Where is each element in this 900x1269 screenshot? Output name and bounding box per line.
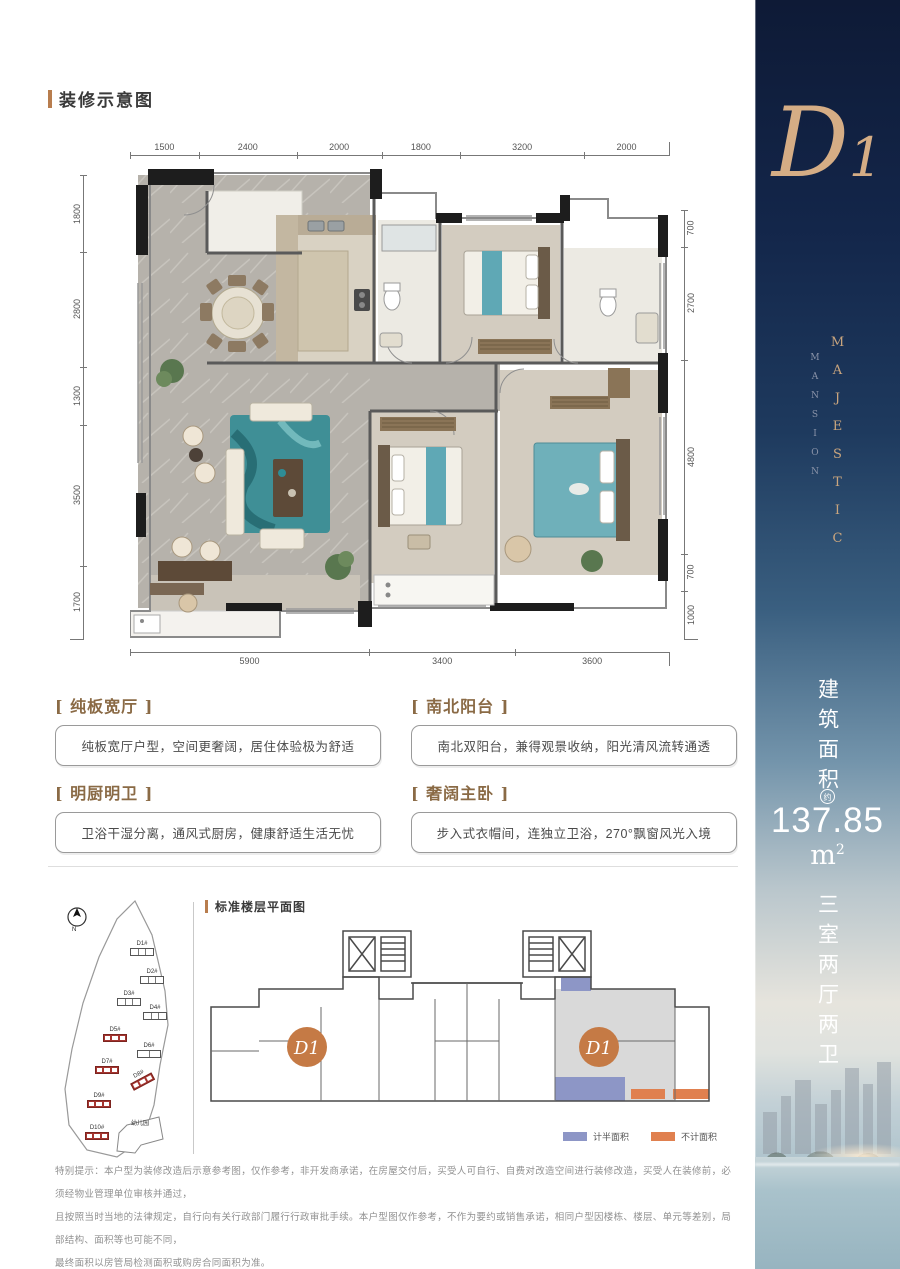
area-label: 建筑面积 (755, 678, 900, 798)
building-d4: D4# (143, 1005, 167, 1020)
half-area-bottom (555, 1077, 625, 1101)
building-d3: D3# (117, 991, 141, 1006)
unit-number: 1 (849, 126, 883, 189)
feature-title: [ 明厨明卫 ] (55, 780, 381, 804)
dim-label: 3200 (460, 142, 584, 156)
building-d5: D5# (103, 1027, 127, 1042)
north-label: N (72, 927, 76, 933)
feature-desc: 卫浴干湿分离，通风式厨房，健康舒适生活无忧 (55, 812, 381, 853)
dim-label: 3400 (369, 652, 515, 666)
kitchen-island (298, 251, 348, 351)
armchair (505, 536, 531, 562)
floor-plan (130, 163, 670, 645)
accent-bar (205, 900, 208, 913)
half-area-top (561, 977, 591, 991)
feature-desc: 纯板宽厅户型，空间更奢阔，居住体验极为舒适 (55, 725, 381, 766)
standard-floor-plan: D1 D1 (203, 921, 731, 1126)
dim-label: 1800 (382, 142, 460, 156)
north-arrow (73, 908, 81, 917)
floor-plan-drawing (130, 163, 670, 645)
hallway-floor (370, 363, 500, 411)
legend-swatch-blue (563, 1132, 587, 1141)
building-d10: D10# (85, 1125, 109, 1140)
excluded-area-2 (673, 1089, 709, 1099)
dim-label: 2400 (199, 142, 297, 156)
page-title: 装修示意图 (59, 86, 154, 111)
dim-label: 2700 (686, 293, 696, 313)
building-d9: D9# (87, 1093, 111, 1108)
dim-label: 1000 (686, 605, 696, 625)
layout-description: 三室两厅两卫 (755, 893, 900, 1073)
dim-label: 2000 (584, 142, 670, 156)
building-d2: D2# (140, 969, 164, 984)
feature-title: [ 奢阔主卧 ] (411, 780, 737, 804)
dim-label: 1500 (130, 142, 199, 156)
section-header-decoration: 装修示意图 (48, 86, 154, 111)
area-unit: m2 (755, 840, 900, 871)
vertical-divider (193, 902, 194, 1154)
feature-bright-kitchen-bath: [ 明厨明卫 ] 卫浴干湿分离，通风式厨房，健康舒适生活无忧 (55, 780, 381, 853)
feature-title: [ 南北阳台 ] (411, 693, 737, 717)
standard-floor-title: 标准楼层平面图 (215, 898, 306, 915)
excluded-area-1 (631, 1089, 665, 1099)
plant (581, 550, 603, 572)
dim-label: 700 (686, 221, 696, 236)
legend-excluded-area: 不计面积 (651, 1130, 717, 1143)
feature-wide-hall: [ 纯板宽厅 ] 纯板宽厅户型，空间更奢阔，居住体验极为舒适 (55, 693, 381, 766)
disclaimer-line: 特别提示：本户型为装修改造后示意参考图，仅作参考，非开发商承诺，在房屋交付后，买… (55, 1160, 737, 1206)
brand-line1: MAJESTIC (830, 335, 845, 559)
dim-label: 3500 (72, 485, 82, 505)
section-header-standard-floor: 标准楼层平面图 (205, 898, 306, 915)
horizontal-divider (48, 866, 738, 867)
feature-desc: 步入式衣帽间，连独立卫浴，270°飘窗风光入境 (411, 812, 737, 853)
brand-name: MANSION MAJESTIC (755, 335, 900, 559)
dim-label: 1800 (72, 204, 82, 224)
dim-label: 3600 (515, 652, 670, 666)
unit-label-right: D1 (585, 1038, 612, 1059)
dim-ruler-left: 1800 2800 1300 3500 1700 (70, 175, 84, 640)
sidebar: D1 MANSION MAJESTIC 建筑面积 约 137.85 m2 三室两… (755, 0, 900, 1269)
dim-label: 2000 (297, 142, 382, 156)
building-d6: D6# (137, 1043, 161, 1058)
feature-balconies: [ 南北阳台 ] 南北双阳台，兼得观景收纳，阳光清风流转通透 (411, 693, 737, 766)
legend: 计半面积 不计面积 (563, 1130, 717, 1143)
dim-ruler-top: 1500 2400 2000 1800 3200 2000 (130, 142, 670, 156)
disclaimer: 特别提示：本户型为装修改造后示意参考图，仅作参考，非开发商承诺，在房屋交付后，买… (55, 1160, 737, 1269)
accent-bar (48, 90, 52, 108)
unit-letter: D (772, 87, 849, 199)
feature-desc: 南北双阳台，兼得观景收纳，阳光清风流转通透 (411, 725, 737, 766)
disclaimer-line: 且按照当时当地的法律规定，自行向有关行政部门履行行政审批手续。本户型图仅作参考，… (55, 1206, 737, 1252)
disclaimer-line: 最终面积以房管局检测面积或购房合同面积为准。 (55, 1252, 737, 1269)
site-plan: N D1# D2# D3# D4# D5# D6# D7# (55, 893, 190, 1165)
dim-label: 2800 (72, 299, 82, 319)
feature-title: [ 纯板宽厅 ] (55, 693, 381, 717)
building-d7: D7# (95, 1059, 119, 1074)
water (755, 1157, 900, 1269)
brand-line2: MANSION (810, 353, 820, 559)
dim-ruler-bottom: 5900 3400 3600 (130, 652, 670, 666)
dim-label: 1700 (72, 592, 82, 612)
unit-badge: D1 (755, 88, 900, 198)
building-d1: D1# (130, 941, 154, 956)
dim-label: 1300 (72, 386, 82, 406)
legend-swatch-orange (651, 1132, 675, 1141)
feature-list: [ 纯板宽厅 ] 纯板宽厅户型，空间更奢阔，居住体验极为舒适 [ 南北阳台 ] … (55, 693, 737, 853)
coffee-table (273, 459, 303, 517)
dim-label: 5900 (130, 652, 369, 666)
area-value: 137.85 (755, 801, 900, 841)
legend-half-area: 计半面积 (563, 1130, 629, 1143)
dim-label: 4800 (686, 447, 696, 467)
brochure-page: 装修示意图 1500 2400 2000 1800 3200 2000 1800… (0, 0, 900, 1269)
dim-ruler-right: 700 2700 4800 700 1000 (684, 210, 698, 640)
unit-label-left: D1 (293, 1038, 320, 1059)
kindergarten-label: 幼儿园 (131, 1118, 149, 1127)
feature-master-suite: [ 奢阔主卧 ] 步入式衣帽间，连独立卫浴，270°飘窗风光入境 (411, 780, 737, 853)
dim-label: 700 (686, 565, 696, 580)
